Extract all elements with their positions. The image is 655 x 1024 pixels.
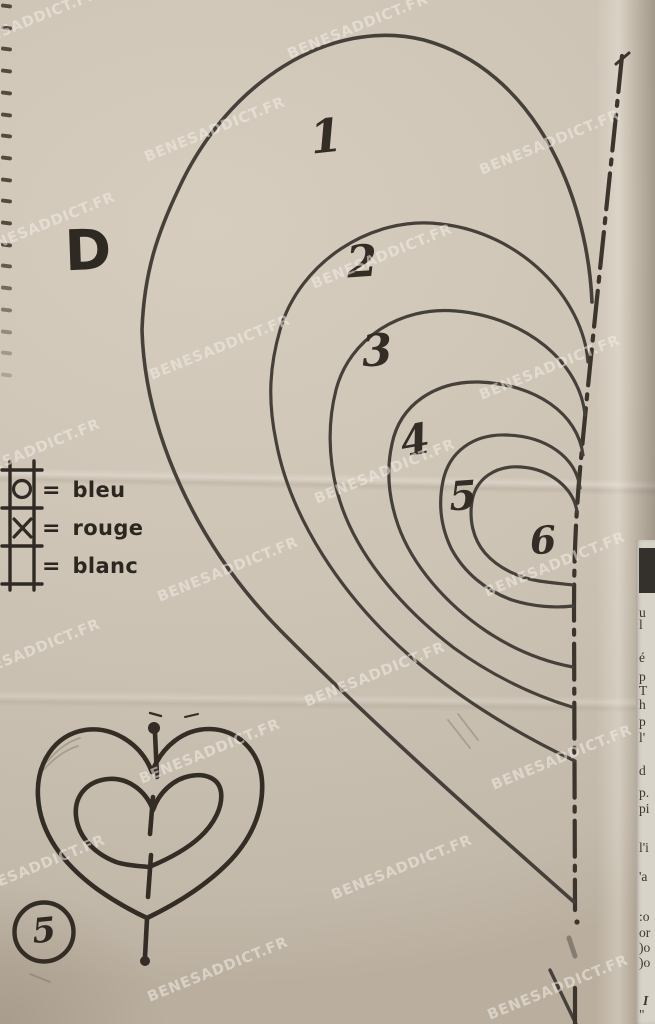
legend-circle-glyph	[14, 481, 31, 498]
scanned-pattern-page: D 123456 = bleu = rouge = blanc 5 ulépTh…	[0, 0, 655, 1024]
figure-number-circle	[15, 903, 74, 962]
heart-curve-5	[441, 435, 580, 607]
legend-symbol	[2, 461, 42, 590]
ink-smudge	[569, 938, 575, 956]
small-tick	[185, 714, 198, 717]
needle-shaft	[155, 733, 157, 777]
detail-heart-inner	[76, 775, 221, 867]
heart-curve-2	[271, 223, 588, 761]
legend-cross-glyph	[14, 519, 31, 537]
bottom-diagonal-line	[550, 970, 576, 1024]
fold-line	[574, 56, 622, 910]
pattern-drawing	[0, 0, 655, 1024]
needle-tip-ball	[140, 956, 150, 966]
small-tick	[150, 713, 161, 716]
heart-curve-4	[389, 382, 583, 667]
fold-dot	[574, 919, 579, 924]
needle-shaft	[148, 855, 151, 897]
needle-shaft	[145, 919, 147, 957]
detail-heart-figure	[15, 713, 263, 966]
heart-curve-3	[330, 311, 585, 707]
needle-shaft	[150, 797, 153, 834]
heart-curve-6	[471, 467, 577, 585]
